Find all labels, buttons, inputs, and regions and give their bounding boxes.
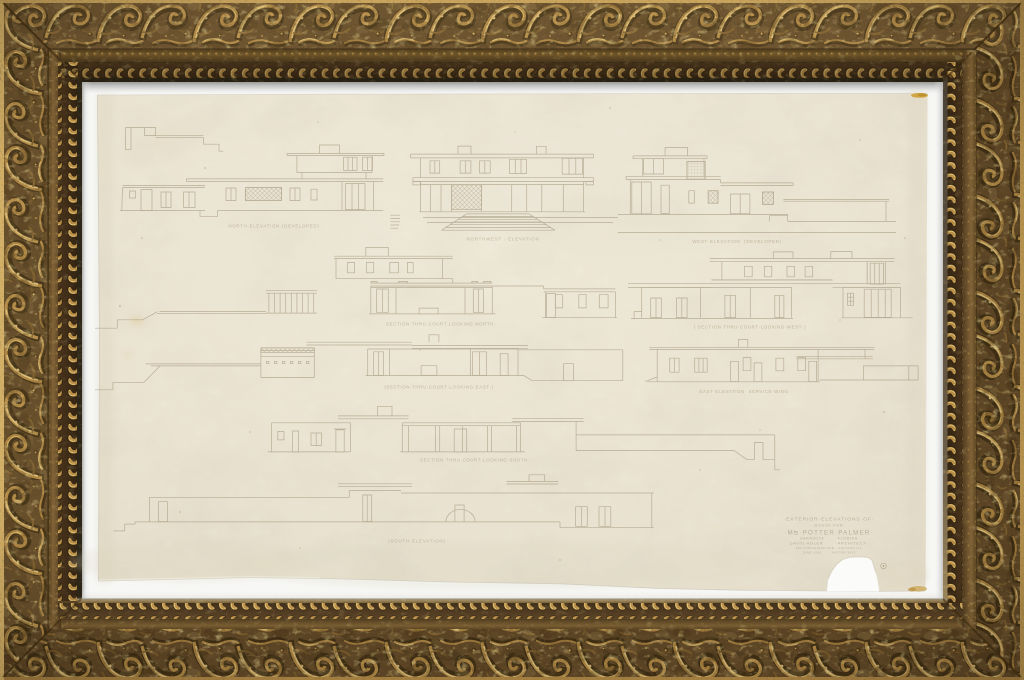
svg-text:DAVID·ADLER ·ARCHITECT·: DAVID·ADLER ·ARCHITECT· [790,541,869,546]
svg-text:JUNE·1926 VICTOR 1413: JUNE·1926 VICTOR 1413 [802,551,855,555]
svg-text:·Mʦ·POTTER·PALMER·: ·Mʦ·POTTER·PALMER· [784,529,873,536]
svg-text:·EAST·ELEVATION· SERVICE·WING·: ·EAST·ELEVATION· SERVICE·WING· [697,389,790,394]
svg-text:(SECTION·THRU·COURT·LOOKING·EA: (SECTION·THRU·COURT·LOOKING·EAST·) [384,385,493,390]
svg-text:·SECTION·THRU·COURT·LOOKING·SO: ·SECTION·THRU·COURT·LOOKING·SOUTH· [418,458,530,463]
svg-text:·EXTERIOR·ELEVATIONS·OF·: ·EXTERIOR·ELEVATIONS·OF· [784,516,875,522]
svg-text:NORTHWEST · ELEVATION: NORTHWEST · ELEVATION [467,236,540,241]
svg-text:646 N MICHIGAN AVE · CHICAGO I: 646 N MICHIGAN AVE · CHICAGO ILL [796,546,862,550]
svg-text:·HOUSE·FOR·: ·HOUSE·FOR· [813,524,846,528]
svg-text:·NORTH·ELEVATION·(DEVELOPED)·: ·NORTH·ELEVATION·(DEVELOPED)· [226,224,321,229]
svg-text:SECTION·THRU·COURT·LOOKING·NOR: SECTION·THRU·COURT·LOOKING·NORTH· [386,321,496,326]
svg-text:(SOUTH·ELEVATION): (SOUTH·ELEVATION) [388,539,445,544]
svg-text:WEST·ELEVATION (DEVELOPED): WEST·ELEVATION (DEVELOPED) [692,239,781,244]
svg-text:( SECTION·THRU·COURT·LOOKING·W: ( SECTION·THRU·COURT·LOOKING·WEST·) [694,325,806,330]
